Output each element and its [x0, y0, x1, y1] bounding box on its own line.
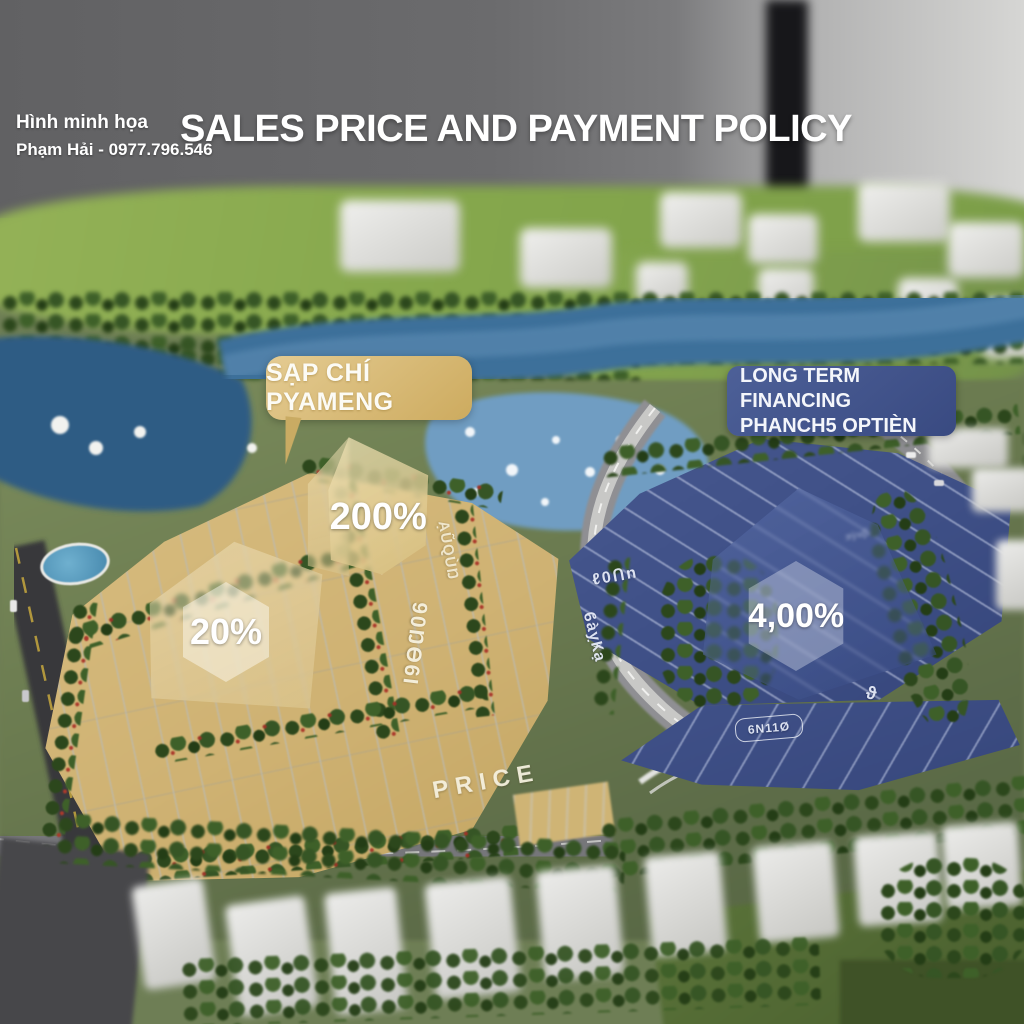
building-blob — [752, 841, 840, 944]
gold-panel-value: 20% — [190, 611, 262, 653]
blue-panel-value: 4,00% — [748, 597, 844, 636]
gold-callout-bubble: SẠP CHÍ PYAMENG — [266, 356, 472, 420]
gold-prism-value: 200% — [330, 496, 422, 539]
page-title: SALES PRICE AND PAYMENT POLICY — [110, 108, 922, 151]
blue-callout-line1: LONG TERM FINANCING — [740, 364, 956, 414]
lake-left — [0, 336, 252, 511]
vehicle — [906, 452, 916, 458]
vehicle — [934, 480, 944, 486]
vehicle — [10, 600, 17, 612]
watermark-line2: Phạm Hải - 0977.796.546 — [16, 140, 213, 160]
gold-callout-label: SẠP CHÍ PYAMENG — [266, 359, 472, 417]
vehicle — [22, 690, 29, 702]
tree-cluster-bottom-right — [878, 858, 1024, 978]
building-blob — [996, 540, 1024, 610]
watermark-line1: Hình minh họa — [16, 112, 148, 134]
gold-prism-200: 200% — [304, 430, 432, 576]
poster-root: PRICE ẠŨQÙŊ 90ŊƟ6I ℓ0Ոn ϐàỵҜạ 6N11Ø ϧỳᴚꞵ… — [0, 0, 1024, 1024]
blue-callout-bubble: LONG TERM FINANCING PHANCH5 OPTIÈN — [727, 366, 956, 436]
building-blob — [972, 468, 1024, 512]
blue-callout-line2: PHANCH5 OPTIÈN — [740, 414, 956, 439]
